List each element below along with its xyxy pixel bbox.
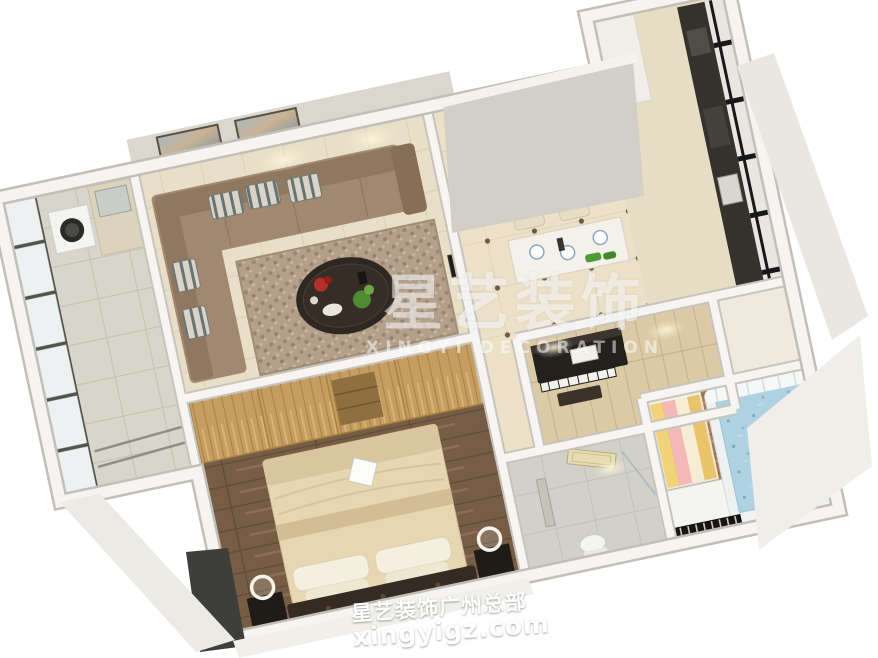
floorplan-render: 星艺装饰 XINGYI DECORATION 星艺装饰广州总部 xingyigz… [0,0,878,658]
apartment-plan [0,0,878,658]
washing-machine [48,204,96,253]
